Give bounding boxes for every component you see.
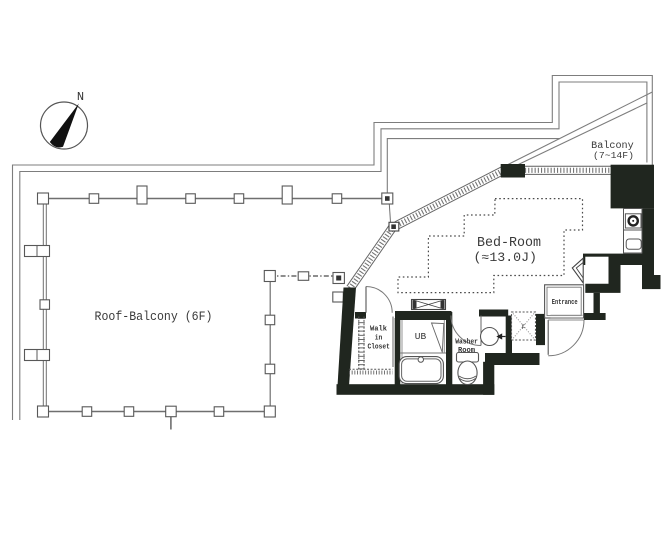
svg-text:Entrance: Entrance [552, 299, 578, 307]
svg-text:F: F [522, 324, 526, 331]
svg-text:N: N [77, 90, 84, 104]
svg-text:Bed-Room: Bed-Room [477, 236, 541, 251]
svg-text:(≈13.0J): (≈13.0J) [474, 251, 538, 265]
svg-text:Walk: Walk [370, 326, 388, 334]
svg-text:Washer: Washer [455, 339, 478, 347]
svg-text:Closet: Closet [368, 344, 390, 352]
svg-text:(7~14F): (7~14F) [593, 150, 634, 161]
svg-text:UB: UB [415, 331, 427, 342]
svg-text:Roof-Balcony (6F): Roof-Balcony (6F) [95, 309, 213, 324]
svg-text:in: in [375, 335, 383, 343]
